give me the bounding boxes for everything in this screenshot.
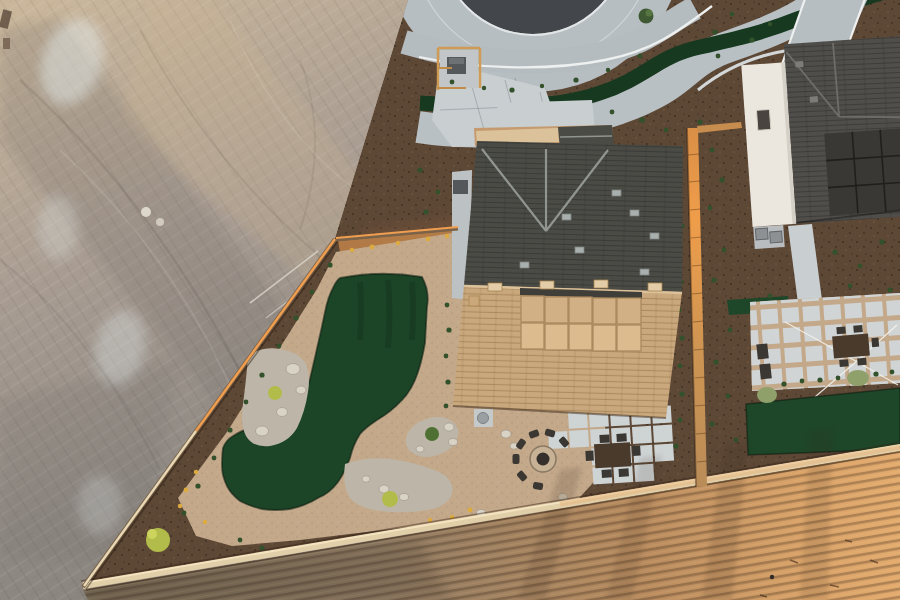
chair xyxy=(632,446,641,456)
green-shrub xyxy=(425,427,439,441)
lounge-chair xyxy=(759,363,772,379)
chair xyxy=(853,325,863,333)
utility-lid xyxy=(478,413,489,424)
solar-array xyxy=(824,128,900,216)
dining-table xyxy=(594,442,631,468)
gypsum-patch xyxy=(78,475,122,535)
sage-bush xyxy=(847,370,869,386)
gable-ridge xyxy=(560,136,612,137)
gypsum-patch xyxy=(38,196,78,260)
chair xyxy=(599,434,609,443)
chair xyxy=(871,338,879,348)
patio-cover-panels xyxy=(521,296,641,351)
chair xyxy=(618,468,628,477)
chair xyxy=(616,433,626,442)
rock-on-dirt xyxy=(156,218,164,226)
lounge-chair xyxy=(756,343,769,359)
utility-box-top xyxy=(449,58,464,64)
neighbor-window xyxy=(756,109,770,130)
ac-unit xyxy=(770,231,783,243)
chair xyxy=(602,469,612,478)
dark-speck xyxy=(770,575,774,579)
ac-unit xyxy=(755,228,768,240)
debris xyxy=(3,38,10,49)
patio-cover xyxy=(520,288,642,351)
chair xyxy=(836,326,846,334)
chair xyxy=(839,359,849,367)
aerial-photo xyxy=(0,0,900,600)
fire-pit-bowl xyxy=(537,453,550,466)
rock-on-dirt xyxy=(141,207,151,217)
utility-enclosure xyxy=(438,48,480,90)
chartreuse-bush xyxy=(382,491,398,507)
side-equipment xyxy=(453,180,468,194)
roof-vent xyxy=(795,61,803,68)
main-house xyxy=(453,100,683,418)
sage-bush xyxy=(757,387,777,403)
chair xyxy=(857,358,867,366)
aerial-scene xyxy=(0,0,900,600)
dining-table xyxy=(832,333,870,358)
chartreuse-bush xyxy=(268,386,282,400)
chair xyxy=(585,450,594,460)
neighbor-house xyxy=(740,36,900,227)
roof-north-texture xyxy=(464,141,683,292)
bush-highlight xyxy=(147,529,157,539)
roof-vent xyxy=(810,96,818,103)
small-tree-highlight xyxy=(646,10,653,17)
